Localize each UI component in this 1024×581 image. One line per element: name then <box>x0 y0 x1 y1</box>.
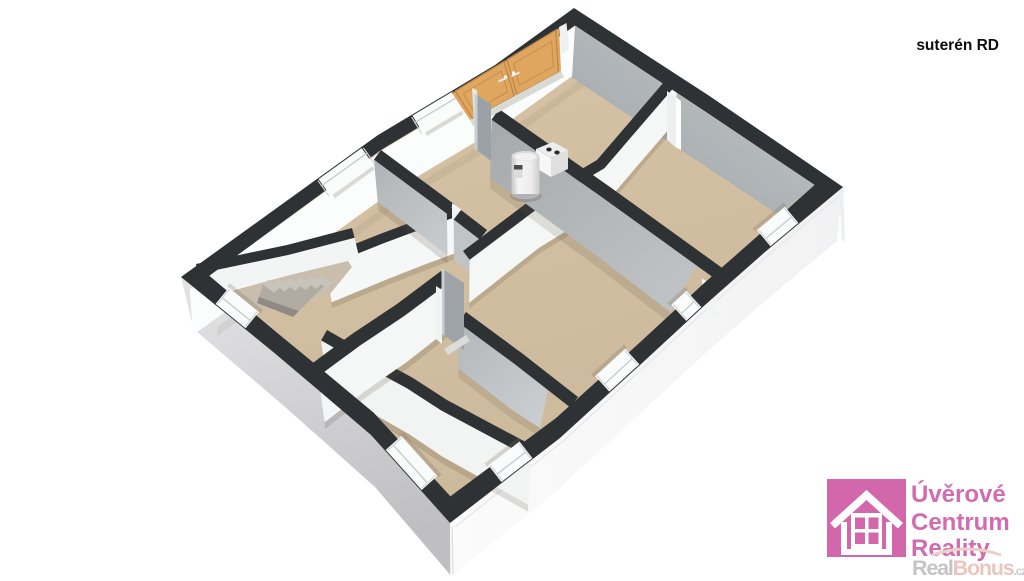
svg-text:Centrum: Centrum <box>911 509 1010 536</box>
svg-text:RealBonus.cz: RealBonus.cz <box>912 556 1024 576</box>
svg-text:suterén RD: suterén RD <box>916 37 999 54</box>
svg-text:Úvěrové: Úvěrové <box>911 480 1006 508</box>
